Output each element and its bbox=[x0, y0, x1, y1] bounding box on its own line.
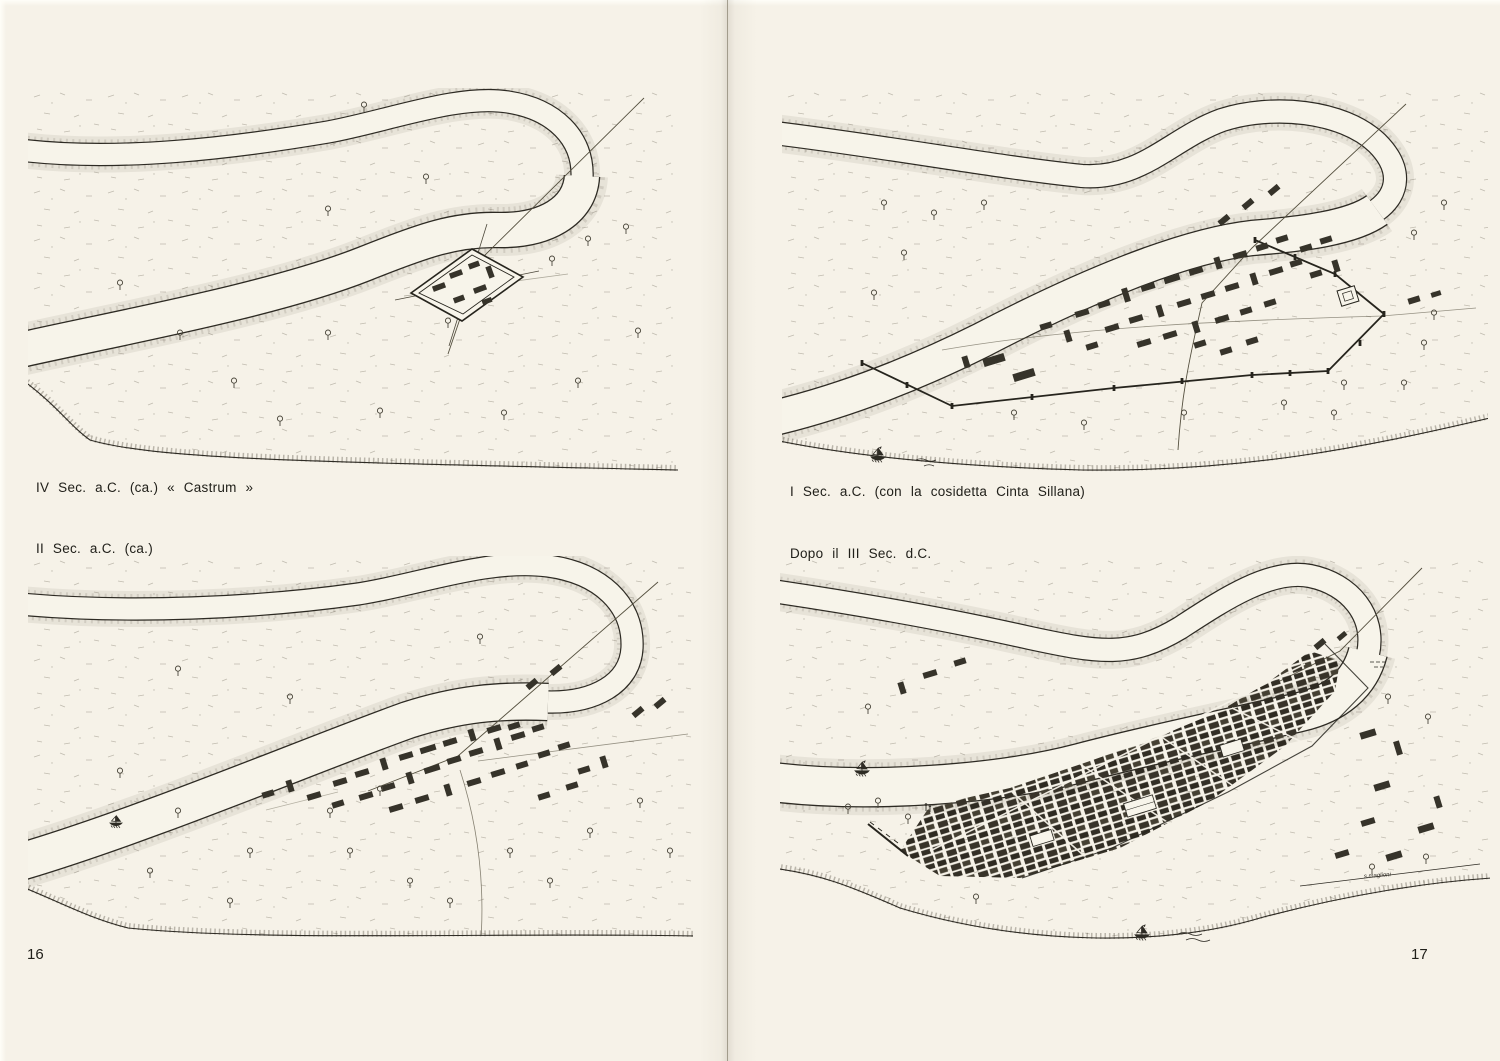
caption-dopo-iii-sec: Dopo il III Sec. d.C. bbox=[790, 546, 931, 561]
illustration-castrum bbox=[28, 88, 678, 483]
illustration-ii-sec bbox=[28, 556, 693, 960]
caption-ii-sec: II Sec. a.C. (ca.) bbox=[36, 541, 153, 556]
illustration-cinta-sillana bbox=[782, 88, 1488, 480]
book-spread: s.maglioni IV Sec. a.C. (ca.) « Castrum … bbox=[0, 0, 1500, 1061]
page-number-right: 17 bbox=[1411, 946, 1428, 963]
page-number-left: 16 bbox=[27, 946, 44, 963]
caption-castrum: IV Sec. a.C. (ca.) « Castrum » bbox=[36, 480, 253, 495]
illustration-dopo-iii-sec: s.maglioni bbox=[780, 556, 1490, 960]
caption-i-sec: I Sec. a.C. (con la cosidetta Cinta Sill… bbox=[790, 484, 1085, 499]
scan-edge-left bbox=[0, 0, 6, 1061]
page-gutter bbox=[699, 0, 757, 1061]
